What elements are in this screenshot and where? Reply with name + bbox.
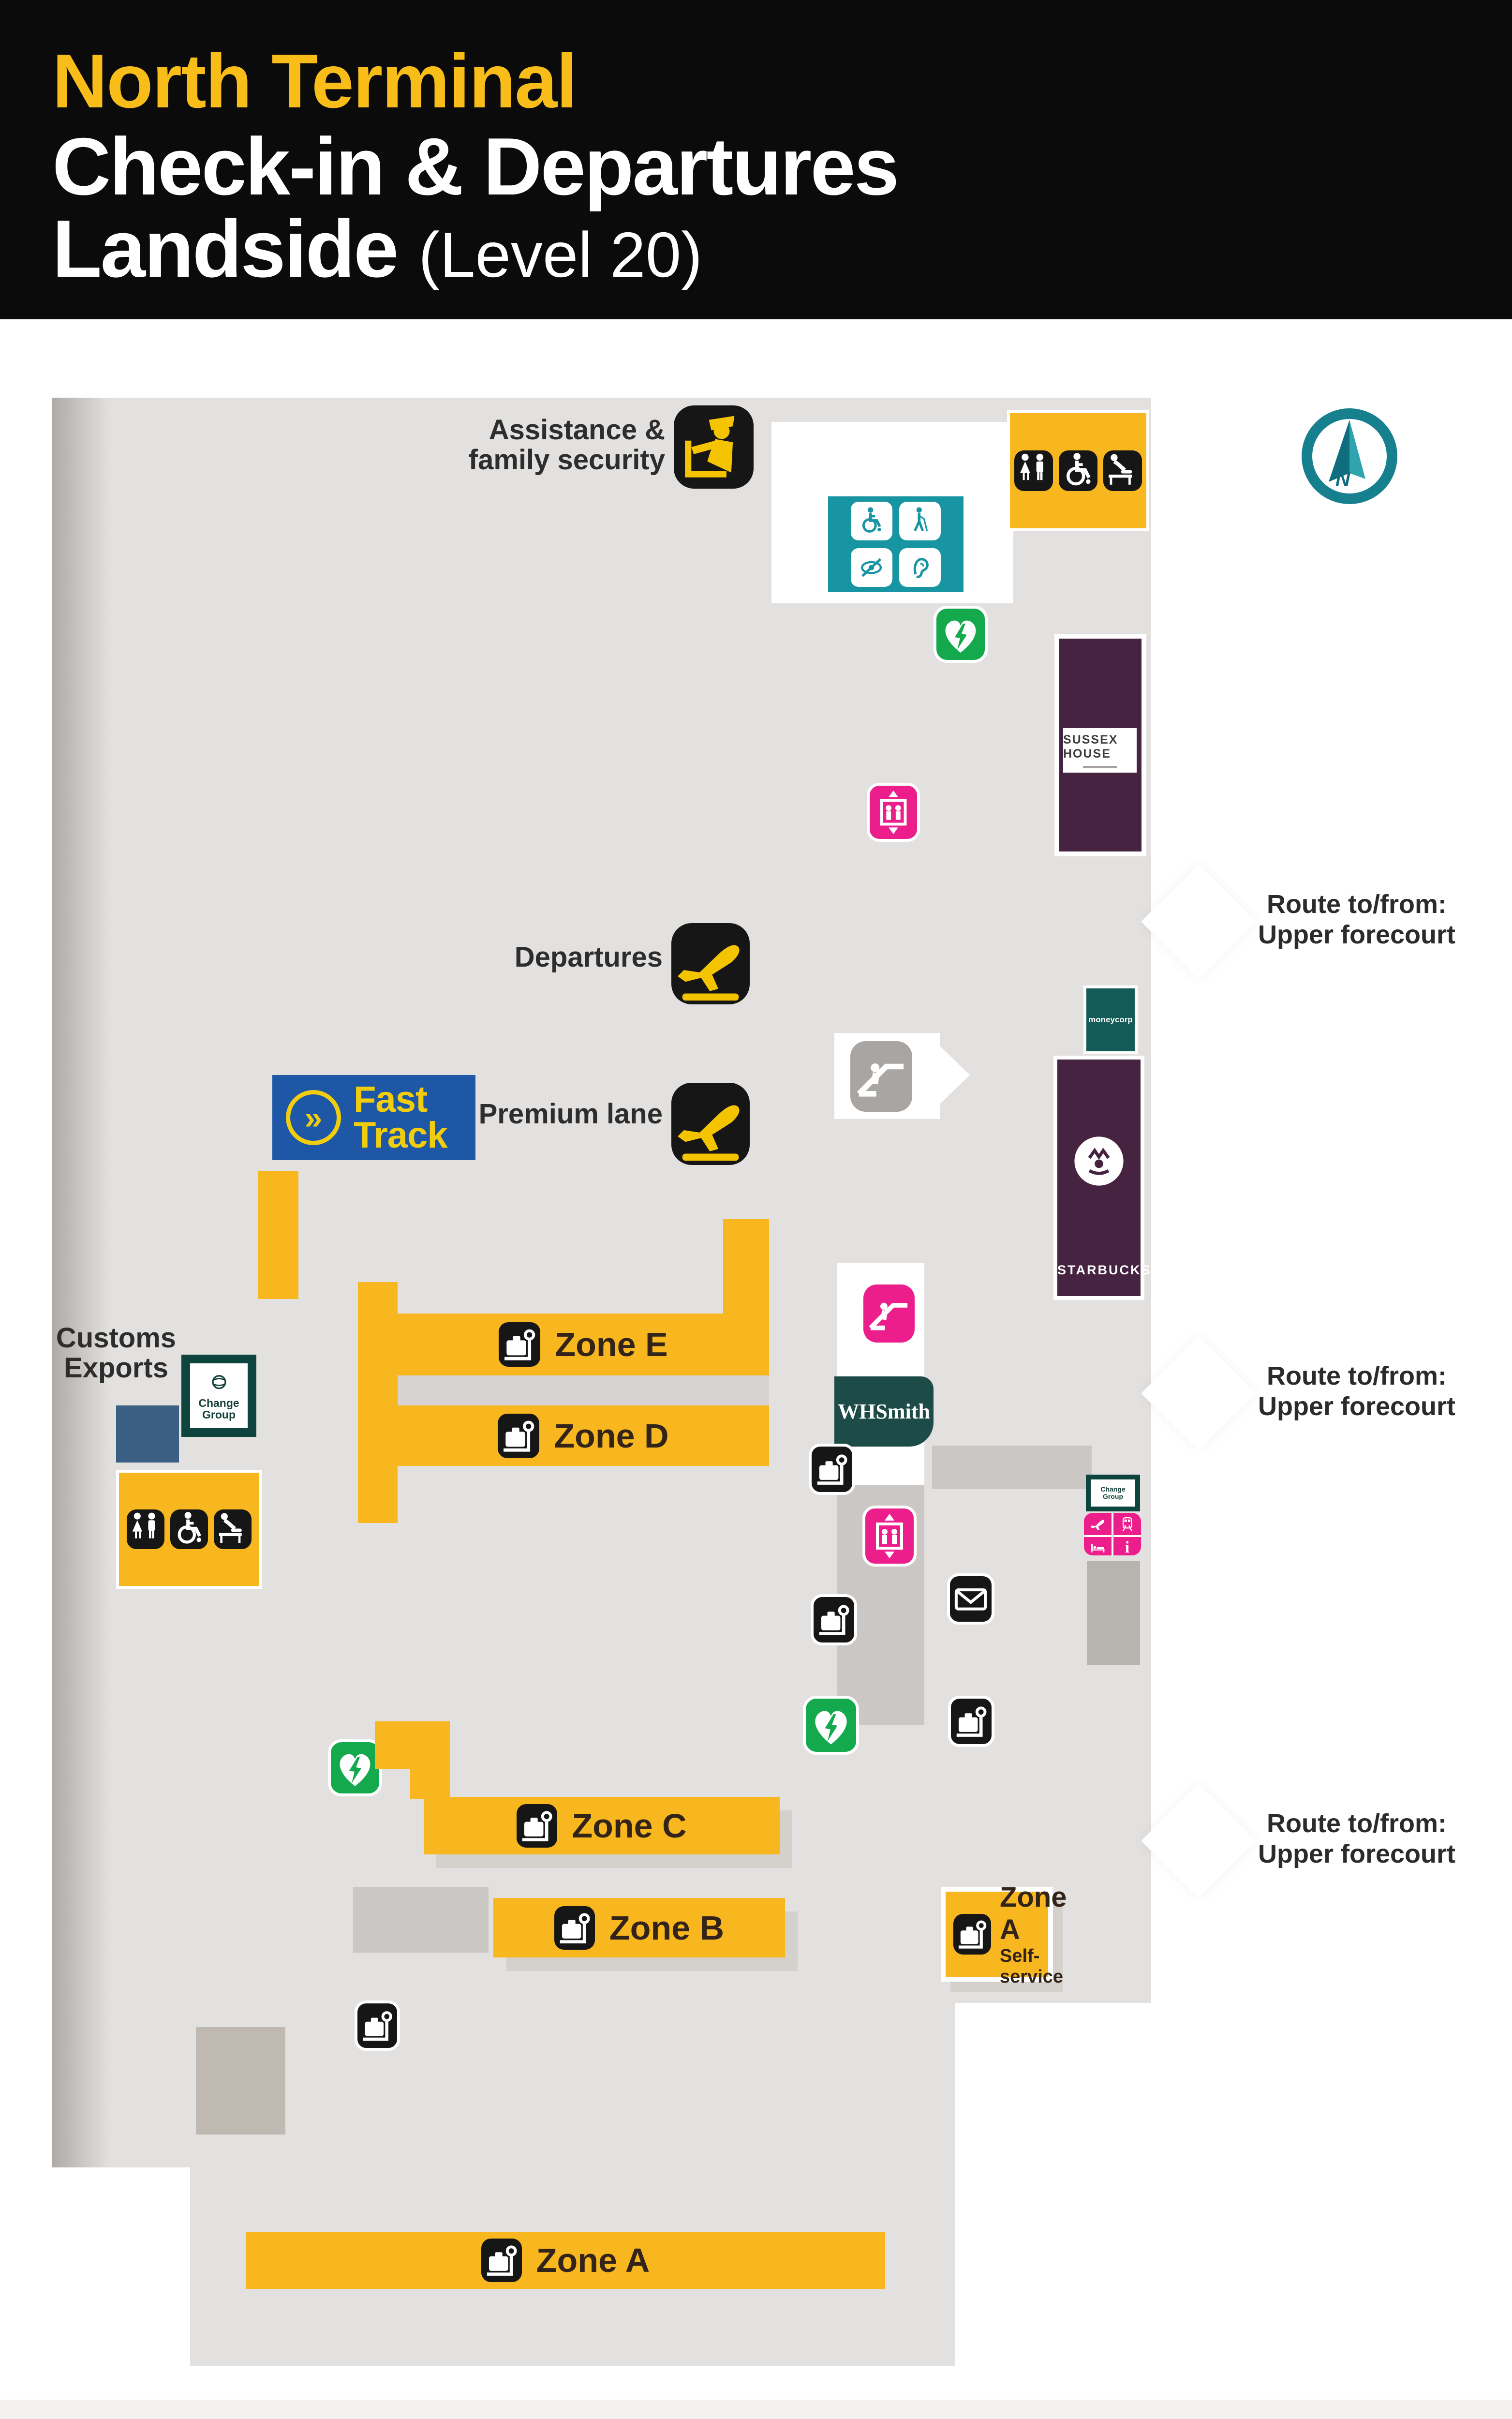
zone-c-bar: Zone C	[424, 1797, 780, 1854]
corridor-right-column	[1087, 1561, 1140, 1665]
toilets-icon	[127, 1509, 164, 1549]
route-label-line2: Upper forecourt	[1229, 920, 1485, 950]
checkin-icon	[809, 1444, 855, 1495]
zone-e-bar: Zone E	[398, 1314, 769, 1375]
bureau-change-group: Change Group	[1086, 1475, 1140, 1511]
toilets-block-customs	[116, 1470, 262, 1589]
shop-sussex-house: SUSSEX HOUSE	[1054, 634, 1146, 856]
route-label: Route to/from: Upper forecourt	[1229, 1808, 1485, 1869]
customs-office-block	[116, 1405, 179, 1463]
zone-a-self-sub: Self-service	[1000, 1946, 1067, 1987]
accessible-toilet-icon	[170, 1509, 208, 1549]
change-group-label-line1: Change	[1100, 1486, 1125, 1493]
special-assistance-block	[825, 493, 966, 595]
route-label: Route to/from: Upper forecourt	[1229, 1361, 1485, 1422]
zone-e-label: Zone E	[555, 1325, 667, 1364]
train-icon	[1113, 1513, 1141, 1535]
zone-a-self-service-block: Zone A Self-service	[941, 1887, 1053, 1982]
route-label-line1: Route to/from:	[1229, 889, 1485, 920]
corridor-zone-ed	[398, 1375, 769, 1405]
wheelchair-assist-icon	[851, 502, 892, 540]
zone-d-bar: Zone D	[398, 1405, 769, 1466]
customs-label-line1: Customs	[48, 1323, 184, 1353]
checkin-icon	[355, 2001, 400, 2051]
zone-d-label: Zone D	[554, 1417, 668, 1455]
footer-band: Map last updated April 2022 KMT 03/22 | …	[0, 2400, 1512, 2419]
assistance-label-line1: Assistance &	[423, 415, 665, 445]
route-label-line2: Upper forecourt	[1229, 1839, 1485, 1869]
page-area: Landside (Level 20)	[52, 202, 702, 296]
visual-impairment-icon	[851, 548, 892, 587]
compass-north-label: N	[1335, 467, 1350, 491]
compass: N	[1299, 405, 1400, 507]
defibrillator-icon	[934, 606, 988, 663]
lift-icon	[862, 1506, 917, 1567]
room-lower-left	[196, 2027, 285, 2135]
checkin-icon	[948, 1696, 994, 1747]
zone-c-label: Zone C	[572, 1807, 686, 1845]
zone-c-connector-v	[410, 1721, 450, 1799]
area-label: Landside	[52, 203, 397, 294]
reduced-mobility-icon	[899, 502, 941, 540]
zone-b-bar: Zone B	[493, 1898, 785, 1957]
starbucks-label: STARBUCKS	[1057, 1263, 1141, 1278]
escalator-icon-grey	[850, 1041, 912, 1112]
page-title: North Terminal	[52, 38, 577, 125]
zone-b-label: Zone B	[609, 1909, 724, 1947]
route-label-line2: Upper forecourt	[1229, 1391, 1485, 1422]
premium-lane-icon	[671, 1083, 750, 1165]
assistance-label-line2: family security	[423, 445, 665, 475]
route-label: Route to/from: Upper forecourt	[1229, 889, 1485, 950]
checkin-icon	[953, 1914, 991, 1955]
zone-e-stub	[723, 1219, 769, 1315]
toilets-block-north	[1007, 410, 1149, 531]
escalator-icon-pink	[863, 1284, 915, 1343]
shop-starbucks: STARBUCKS	[1053, 1056, 1144, 1300]
information-glyph: i	[1125, 1538, 1129, 1555]
checkin-icon	[499, 1322, 540, 1367]
starbucks-logo	[1072, 1135, 1126, 1188]
checkin-icon	[554, 1906, 595, 1950]
checkin-stub-west	[258, 1171, 298, 1299]
terminal-map: N Assistance & family security SUS	[0, 319, 1512, 2400]
information-icon: i	[1113, 1537, 1141, 1555]
baby-change-icon	[214, 1509, 252, 1549]
zone-a-self-title: Zone A	[1000, 1881, 1067, 1946]
zone-a-bar: Zone A	[246, 2232, 885, 2289]
bureau-change-group: Change Group	[181, 1355, 256, 1437]
sussex-house-subline	[1083, 766, 1117, 768]
post-box-icon	[947, 1573, 994, 1625]
fast-track-chevron-icon: »	[286, 1090, 341, 1145]
assistance-security-icon	[674, 405, 754, 489]
whsmith-label: WHSmith	[838, 1399, 930, 1424]
change-group-label-line1: Change	[198, 1397, 239, 1409]
assistance-label: Assistance & family security	[423, 415, 665, 475]
zone-a-label: Zone A	[536, 2241, 650, 2280]
cutout-bottom-right	[955, 2003, 1151, 2366]
level-label: (Level 20)	[418, 219, 702, 290]
baby-change-icon	[1103, 450, 1142, 491]
hotel-icon	[1084, 1537, 1112, 1555]
customs-label-line2: Exports	[48, 1353, 184, 1383]
change-group-label-line2: Group	[202, 1409, 236, 1420]
moneycorp-label: moneycorp	[1088, 1015, 1133, 1025]
checkin-icon	[811, 1594, 857, 1645]
cutout-bottom-left	[52, 2167, 190, 2367]
accessible-toilet-icon	[1059, 450, 1097, 491]
hearing-impairment-icon	[899, 548, 941, 587]
flights-icon	[1084, 1513, 1112, 1535]
room-escalator-arrow	[939, 1045, 970, 1105]
sussex-house-label: SUSSEX HOUSE	[1063, 733, 1137, 761]
departures-label: Departures	[421, 942, 663, 972]
defibrillator-icon	[803, 1696, 859, 1755]
shop-whsmith: WHSmith	[834, 1376, 934, 1447]
page-subtitle: Check-in & Departures	[52, 120, 898, 213]
lift-icon	[867, 783, 920, 842]
departures-icon	[671, 923, 750, 1004]
zone-ed-connector	[358, 1282, 398, 1523]
checkin-icon	[517, 1804, 557, 1848]
customs-exports-label: Customs Exports	[48, 1323, 184, 1383]
shop-moneycorp: moneycorp	[1083, 986, 1138, 1054]
premium-lane-label: Premium lane	[421, 1099, 663, 1129]
route-label-line1: Route to/from:	[1229, 1361, 1485, 1391]
route-label-line1: Route to/from:	[1229, 1808, 1485, 1839]
checkin-icon	[498, 1414, 539, 1458]
header-banner: North Terminal Check-in & Departures Lan…	[0, 0, 1512, 319]
toilets-icon	[1014, 450, 1053, 491]
corridor-whsmith	[932, 1446, 1092, 1489]
checkin-icon	[481, 2239, 522, 2282]
change-group-label-line2: Group	[1103, 1493, 1123, 1500]
corridor-lower-left	[353, 1887, 489, 1953]
defibrillator-icon	[328, 1739, 382, 1796]
transport-links-block: i	[1084, 1513, 1141, 1555]
sussex-house-sign: SUSSEX HOUSE	[1063, 728, 1137, 773]
